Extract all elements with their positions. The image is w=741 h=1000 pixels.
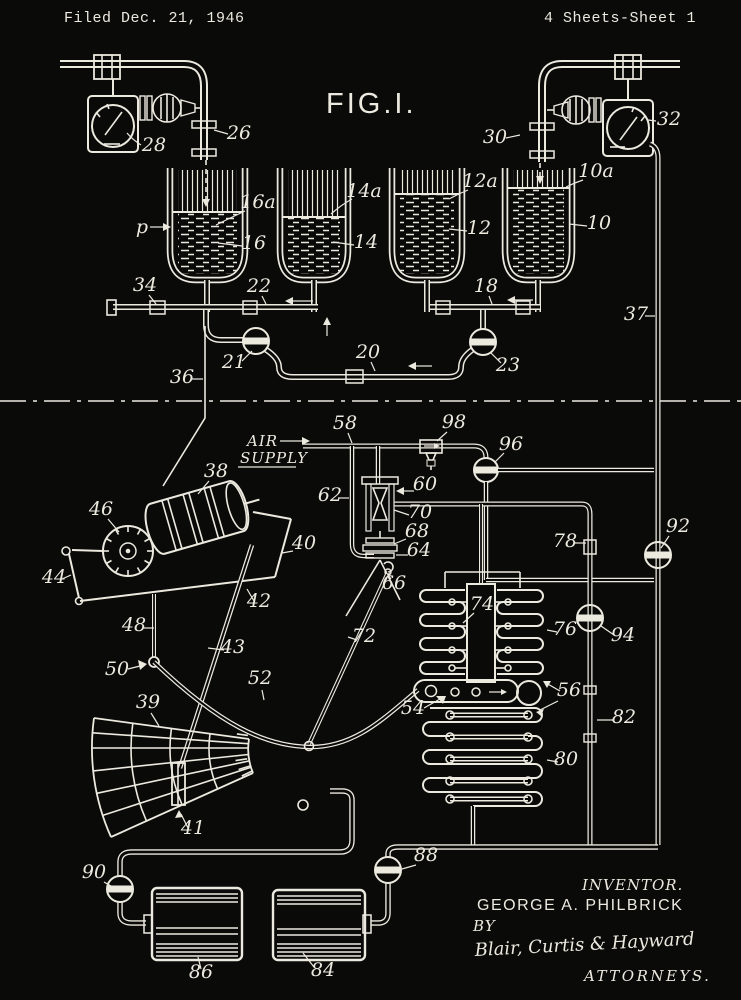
ref-label-86: 86 bbox=[189, 961, 213, 983]
ref-label-64: 64 bbox=[407, 539, 431, 561]
ref-label-72: 72 bbox=[352, 625, 376, 647]
air-supply-label-1: AIR bbox=[245, 432, 278, 450]
ref-label-10a: 10a bbox=[578, 160, 614, 182]
ref-label-18: 18 bbox=[474, 275, 498, 297]
attorneys-label: ATTORNEYS. bbox=[582, 967, 711, 985]
ref-label-32: 32 bbox=[657, 108, 681, 130]
ref-label-20: 20 bbox=[355, 341, 380, 363]
pressure-gauge-32 bbox=[603, 100, 653, 156]
ref-label-48: 48 bbox=[121, 614, 146, 636]
ref-label-66: 66 bbox=[382, 572, 406, 594]
sheet-number-label: 4 Sheets-Sheet 1 bbox=[544, 10, 696, 27]
valve-ball-90 bbox=[107, 876, 133, 902]
ref-label-16: 16 bbox=[242, 232, 266, 254]
ref-label-58: 58 bbox=[333, 412, 357, 434]
ref-label-43: 43 bbox=[220, 636, 245, 658]
tank-10 bbox=[505, 168, 572, 280]
figure-title: FIG.I. bbox=[326, 88, 417, 120]
ref-label-74: 74 bbox=[470, 593, 494, 615]
ref-label-44: 44 bbox=[41, 566, 66, 588]
ref-label-82: 82 bbox=[612, 706, 636, 728]
receiver-tank-84 bbox=[273, 890, 365, 960]
ref-label-98: 98 bbox=[442, 411, 466, 433]
ref-label-52: 52 bbox=[248, 667, 272, 689]
lower-coil-bank bbox=[423, 708, 542, 847]
ref-label-84: 84 bbox=[311, 959, 335, 981]
ref-label-96: 96 bbox=[499, 433, 523, 455]
ref-label-80: 80 bbox=[554, 748, 578, 770]
ref-label-16a: 16a bbox=[240, 191, 276, 213]
flow-arrow-up bbox=[323, 317, 331, 325]
regulator-valve-right bbox=[547, 96, 601, 124]
ref-label-12a: 12a bbox=[462, 170, 498, 192]
valve-ball-23 bbox=[470, 329, 496, 355]
ref-label-46: 46 bbox=[88, 498, 113, 520]
ref-label-10: 10 bbox=[587, 212, 611, 234]
valve-body-60 bbox=[366, 484, 371, 531]
valve-ball-96 bbox=[474, 458, 498, 482]
ref-label-92: 92 bbox=[666, 515, 690, 537]
inventor-heading: INVENTOR. bbox=[581, 876, 683, 894]
ref-label-39: 39 bbox=[136, 691, 160, 713]
ref-label-26: 26 bbox=[226, 122, 251, 144]
ref-label-54: 54 bbox=[401, 697, 425, 719]
pivot-44 bbox=[62, 547, 70, 555]
ref-label-38: 38 bbox=[204, 460, 228, 482]
ref-label-40: 40 bbox=[291, 532, 316, 554]
signal-line-36 bbox=[163, 326, 205, 486]
flow-arrow-20 bbox=[408, 362, 416, 370]
filed-date-label: Filed Dec. 21, 1946 bbox=[64, 10, 245, 27]
ref-label-34: 34 bbox=[133, 274, 157, 296]
ref-label-88: 88 bbox=[414, 844, 438, 866]
tank-16 bbox=[170, 168, 245, 280]
indicator-dial-46 bbox=[103, 526, 153, 576]
tank-12 bbox=[392, 168, 462, 280]
ref-label-50: 50 bbox=[105, 658, 129, 680]
pressure-label: p bbox=[136, 216, 148, 238]
receiver-tank-86 bbox=[152, 888, 242, 960]
diaphragm-stack-68 bbox=[366, 538, 394, 543]
pressure-gauge-28 bbox=[88, 96, 138, 152]
tank-14 bbox=[280, 168, 348, 280]
flow-arrow-18 bbox=[507, 296, 515, 304]
ref-label-41: 41 bbox=[180, 817, 205, 839]
inventor-name: GEORGE A. PHILBRICK bbox=[477, 897, 683, 914]
ref-label-14a: 14a bbox=[346, 180, 382, 202]
ref-label-78: 78 bbox=[553, 530, 577, 552]
ref-label-23: 23 bbox=[495, 354, 520, 376]
by-label: BY bbox=[472, 917, 497, 935]
patent-drawing: Filed Dec. 21, 1946 4 Sheets-Sheet 1 FIG… bbox=[0, 0, 741, 1000]
attorney-signature: Blair, Curtis & Hayward bbox=[473, 929, 695, 962]
credits-block: INVENTOR. GEORGE A. PHILBRICK BY Blair, … bbox=[472, 876, 711, 985]
ref-label-36: 36 bbox=[170, 366, 194, 388]
valve-ball-88 bbox=[375, 857, 401, 883]
venturi-70 bbox=[373, 488, 387, 520]
ref-label-94: 94 bbox=[611, 624, 635, 646]
ref-label-12: 12 bbox=[467, 217, 491, 239]
ref-label-90: 90 bbox=[82, 861, 106, 883]
ref-label-37: 37 bbox=[624, 303, 649, 325]
link-bar-54 bbox=[414, 680, 541, 705]
ref-label-60: 60 bbox=[413, 473, 437, 495]
leader-arrowheads bbox=[138, 223, 551, 818]
heater-rods bbox=[446, 711, 532, 803]
flow-arrow-22 bbox=[285, 297, 293, 305]
ref-label-76: 76 bbox=[553, 618, 577, 640]
support-frame-40 bbox=[69, 512, 291, 601]
ref-label-42: 42 bbox=[246, 590, 271, 612]
ref-label-28: 28 bbox=[141, 134, 166, 156]
regulator-valve-left bbox=[140, 94, 200, 122]
upper-coil-bank bbox=[420, 572, 543, 682]
ref-label-22: 22 bbox=[246, 275, 271, 297]
air-supply-label-2: SUPPLY bbox=[240, 449, 309, 467]
patent-sheet: Filed Dec. 21, 1946 4 Sheets-Sheet 1 FIG… bbox=[0, 0, 741, 1000]
ref-label-21: 21 bbox=[221, 351, 246, 373]
ref-label-30: 30 bbox=[483, 126, 507, 148]
ref-label-56: 56 bbox=[557, 679, 581, 701]
ref-label-62: 62 bbox=[318, 484, 342, 506]
ref-label-14: 14 bbox=[354, 231, 378, 253]
valve-ball-21 bbox=[243, 328, 269, 354]
